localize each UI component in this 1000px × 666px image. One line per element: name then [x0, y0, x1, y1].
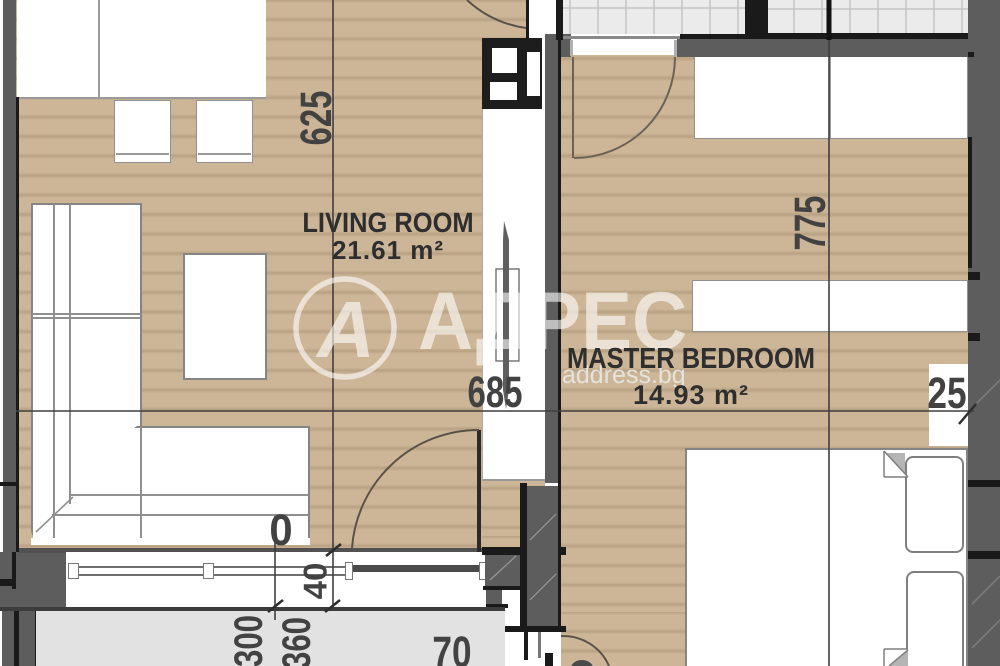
svg-text:А: А — [315, 285, 375, 374]
